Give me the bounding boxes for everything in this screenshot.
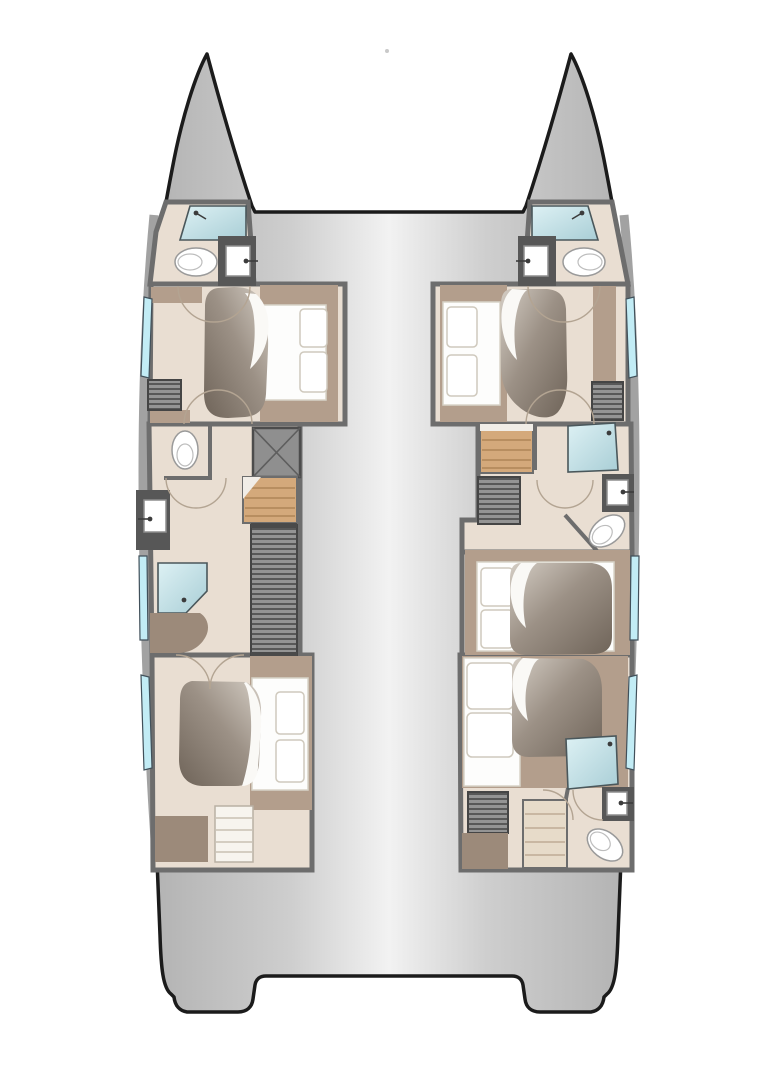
toilet [172, 431, 198, 469]
cabinet [155, 816, 208, 862]
hull-window [139, 556, 148, 640]
pillow [467, 713, 513, 757]
wardrobe-louvered [592, 382, 623, 420]
shower-head-icon [607, 431, 612, 436]
shower-head-icon [608, 742, 613, 747]
pillow [481, 610, 513, 648]
aft-steps [523, 800, 567, 868]
catamaran-deck-plan [0, 0, 778, 1080]
shower-tray [180, 206, 246, 240]
pillow [300, 309, 327, 347]
louvered-locker-long [251, 525, 297, 655]
page [0, 0, 778, 1080]
cabinet [462, 833, 508, 869]
shower-tray [532, 206, 598, 240]
pillow [300, 352, 327, 392]
dresser [215, 806, 253, 862]
shelf [151, 287, 202, 303]
toilet [563, 248, 605, 276]
hull-window [630, 556, 639, 640]
shower-tray [568, 423, 618, 472]
shower-head-icon [182, 598, 187, 603]
pillow [447, 307, 477, 347]
companionway-stairs [480, 424, 533, 473]
toilet [175, 248, 217, 276]
deck-speck [385, 49, 389, 53]
washbasin [144, 500, 166, 532]
pillow [276, 692, 304, 734]
pillow [481, 568, 513, 606]
wardrobe-louvered [468, 792, 508, 833]
pillow [276, 740, 304, 782]
louvered-locker [478, 477, 520, 524]
locker-cap [251, 523, 297, 528]
stair-landing [480, 424, 533, 431]
starboard-hull [433, 202, 635, 870]
pillow [467, 663, 513, 709]
pillow [447, 355, 477, 396]
wardrobe-louvered [148, 380, 181, 410]
